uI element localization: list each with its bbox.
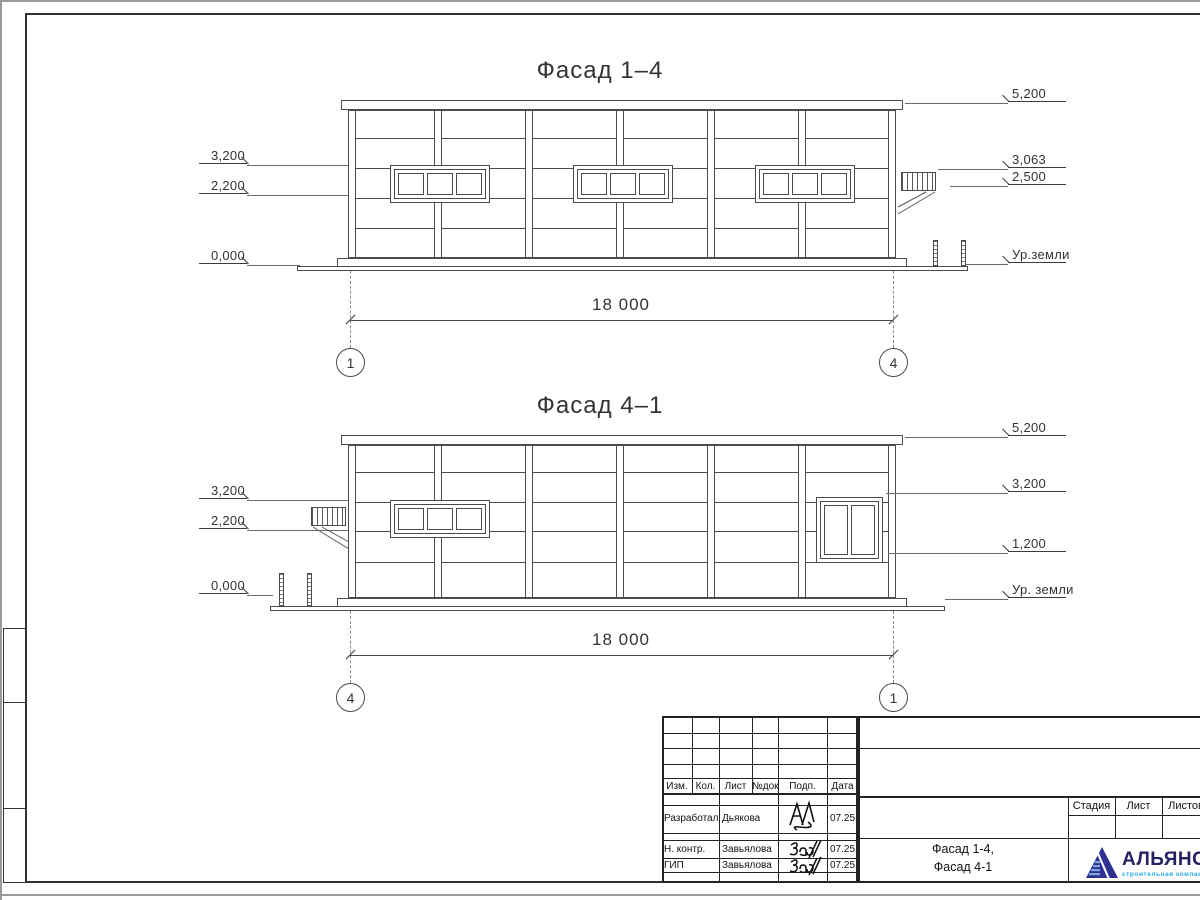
col-header: Дата <box>827 781 858 792</box>
axis-bubble: 4 <box>879 348 908 377</box>
column <box>616 446 624 597</box>
tbv <box>719 716 720 883</box>
sheet-edge-top <box>0 0 1200 2</box>
elevation-mark: 5,200 <box>1012 420 1046 435</box>
ground-band <box>297 266 968 271</box>
facade-1-title: Фасад 1–4 <box>0 57 1200 85</box>
shelf <box>1008 435 1066 436</box>
column <box>707 111 715 257</box>
lead <box>938 169 1008 170</box>
column <box>348 111 356 257</box>
date-cell: 07.25 <box>827 844 858 855</box>
win-in <box>577 169 669 199</box>
column <box>707 446 715 597</box>
dimension-value: 18 000 <box>521 630 721 650</box>
drawing-line <box>1093 865 1100 867</box>
col-header: Кол. <box>692 781 719 792</box>
post <box>961 240 966 266</box>
pane <box>763 173 789 195</box>
axis-bubble: 4 <box>336 683 365 712</box>
name-cell: Завьялова <box>722 860 772 871</box>
signature <box>786 856 826 876</box>
window-3pane <box>390 165 490 203</box>
name-cell: Дьякова <box>722 813 760 824</box>
lead <box>886 493 1008 494</box>
alliance-logo-subtitle: строительная компания <box>1122 871 1200 878</box>
window-2pane <box>816 497 883 563</box>
lead <box>247 195 348 196</box>
column <box>525 111 533 257</box>
alliance-logo-icon <box>1084 845 1120 881</box>
shelf <box>1008 101 1066 102</box>
tbh <box>662 872 858 873</box>
sheet-header: Лист <box>1115 800 1162 812</box>
elevation-mark: 5,200 <box>1012 86 1046 101</box>
col-header: Подп. <box>778 781 827 792</box>
role-cell: Н. контр. <box>664 844 705 855</box>
shelf <box>199 263 247 264</box>
lead <box>950 186 1008 187</box>
pane <box>398 508 424 530</box>
pane <box>427 173 453 195</box>
role-cell: ГИП <box>664 860 684 871</box>
tbh <box>858 838 1200 839</box>
shelf <box>1008 491 1066 492</box>
pane <box>427 508 453 530</box>
col-header: Изм. <box>662 781 692 792</box>
roof-cap <box>341 100 903 110</box>
lead <box>247 530 348 531</box>
pane <box>824 505 848 555</box>
column <box>798 446 806 597</box>
axis-line <box>350 271 351 348</box>
pane <box>581 173 607 195</box>
canopy <box>901 172 936 191</box>
roof-cap <box>341 435 903 445</box>
lead <box>247 500 348 501</box>
tbh <box>858 796 1200 798</box>
column <box>525 446 533 597</box>
axis-bubble: 1 <box>879 683 908 712</box>
axis-bubble: 1 <box>336 348 365 377</box>
shelf <box>1008 597 1066 598</box>
lead <box>247 595 273 596</box>
elevation-mark: 2,500 <box>1012 169 1046 184</box>
elevation-mark: 3,200 <box>199 148 245 163</box>
doc-title-line1: Фасад 1-4, <box>863 840 1063 858</box>
window-3pane <box>390 500 490 538</box>
post <box>279 573 284 606</box>
ground-band <box>270 606 945 611</box>
drawing-line <box>1091 869 1100 871</box>
window-3pane <box>573 165 673 203</box>
pane <box>456 508 482 530</box>
lead <box>888 553 1008 554</box>
pane <box>851 505 875 555</box>
win-in <box>820 501 879 559</box>
column <box>348 446 356 597</box>
elevation-mark: 2,200 <box>199 513 245 528</box>
role-cell: Разработал <box>664 813 718 824</box>
column <box>888 111 896 257</box>
pane <box>821 173 847 195</box>
axis-line <box>893 271 894 348</box>
axis-line <box>350 611 351 683</box>
drawing-line <box>790 803 814 830</box>
shelf <box>199 528 247 529</box>
dimension-line <box>350 320 893 321</box>
hl <box>3 702 25 703</box>
shelf <box>1008 184 1066 185</box>
lead <box>905 437 1008 438</box>
signature <box>784 799 826 833</box>
elevation-mark: 0,000 <box>199 578 245 593</box>
shelf <box>199 593 247 594</box>
dimension-value: 18 000 <box>521 295 721 315</box>
shelf <box>1008 167 1066 168</box>
tbh <box>1068 815 1200 816</box>
ground-level-label: Ур.земли <box>1012 247 1070 262</box>
win-in <box>394 504 486 534</box>
elevation-mark: 1,200 <box>1012 536 1046 551</box>
tbh <box>858 748 1200 749</box>
shelf <box>199 498 247 499</box>
sheet-edge-left <box>0 0 2 900</box>
elevation-mark: 2,200 <box>199 178 245 193</box>
shelf <box>199 163 247 164</box>
sheet-edge-bottom <box>0 894 1200 896</box>
drawing-line <box>898 192 935 214</box>
tbv <box>778 716 779 883</box>
pane <box>792 173 818 195</box>
alliance-logo-text: АЛЬЯНС <box>1122 849 1200 871</box>
drawing-line <box>1095 861 1100 863</box>
sheets-header: Листов <box>1162 800 1200 812</box>
date-cell: 07.25 <box>827 860 858 871</box>
doc-title: Фасад 1-4, Фасад 4-1 <box>863 840 1063 876</box>
pane <box>639 173 665 195</box>
lead <box>247 165 348 166</box>
name-cell: Завьялова <box>722 844 772 855</box>
canopy-brace <box>896 191 938 217</box>
shelf <box>1008 551 1066 552</box>
shelf <box>199 193 247 194</box>
tbh <box>662 858 858 859</box>
lead <box>905 103 1008 104</box>
elevation-mark: 3,063 <box>1012 152 1046 167</box>
drawing-line <box>1089 873 1100 875</box>
tbh <box>662 805 858 806</box>
pane <box>610 173 636 195</box>
window-3pane <box>755 165 855 203</box>
canopy <box>311 507 346 526</box>
ground-level-label: Ур. земли <box>1012 582 1074 597</box>
pane <box>456 173 482 195</box>
tbv <box>827 716 828 883</box>
win-in <box>394 169 486 199</box>
col-header: Лист <box>719 781 752 792</box>
elevation-mark: 0,000 <box>199 248 245 263</box>
post <box>933 240 938 266</box>
col-header: №док <box>752 781 778 792</box>
axis-line <box>893 611 894 683</box>
lead <box>945 599 1008 600</box>
facade-2-title: Фасад 4–1 <box>0 392 1200 420</box>
win-in <box>759 169 851 199</box>
shelf <box>1008 262 1066 263</box>
frame-side-stamp <box>3 628 26 883</box>
column <box>888 446 896 597</box>
dimension-line <box>350 655 893 656</box>
tbh <box>662 833 858 834</box>
tbh <box>662 840 858 841</box>
post <box>307 573 312 606</box>
hl <box>3 808 25 809</box>
date-cell: 07.25 <box>827 813 858 824</box>
lead <box>247 265 300 266</box>
pane <box>398 173 424 195</box>
drawing-line <box>790 857 821 875</box>
lead <box>966 264 1008 265</box>
doc-title-line2: Фасад 4-1 <box>863 858 1063 876</box>
elevation-mark: 3,200 <box>1012 476 1046 491</box>
drawing-sheet: Фасад 1–4 <box>0 0 1200 900</box>
elevation-mark: 3,200 <box>199 483 245 498</box>
stage-header: Стадия <box>1068 800 1115 812</box>
